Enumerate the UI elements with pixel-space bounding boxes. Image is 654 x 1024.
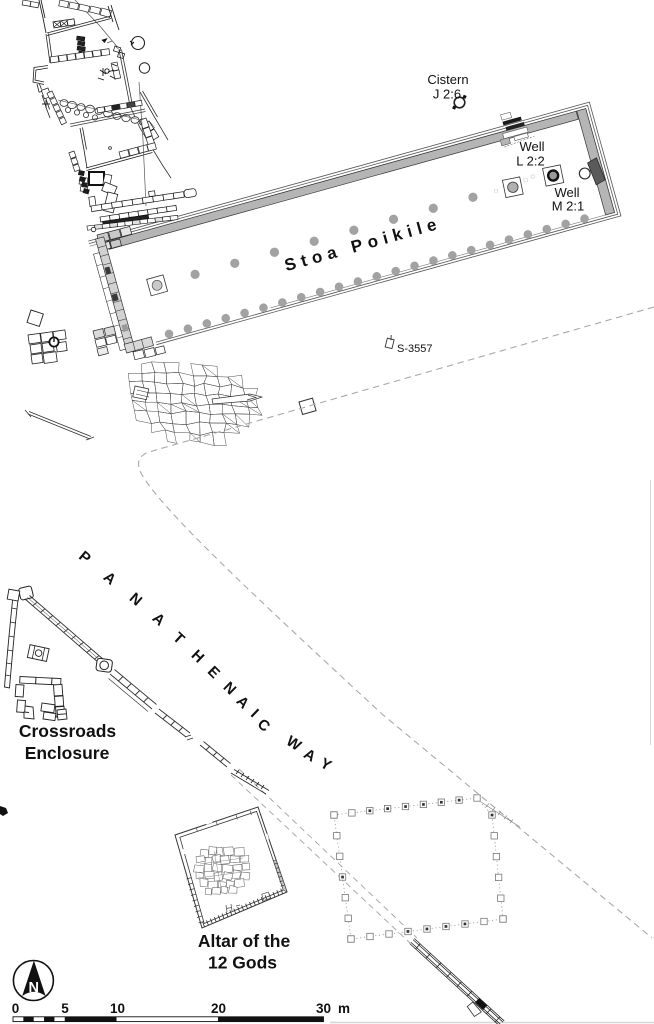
svg-text:Enclosure: Enclosure xyxy=(25,743,110,763)
svg-text:30: 30 xyxy=(316,1001,331,1016)
svg-text:N: N xyxy=(28,980,38,996)
svg-text:S-3557: S-3557 xyxy=(397,343,432,355)
svg-text:M 2:1: M 2:1 xyxy=(552,199,585,214)
svg-text:Altar of the: Altar of the xyxy=(198,931,291,951)
svg-text:10: 10 xyxy=(110,1001,125,1016)
svg-text:J 2:6: J 2:6 xyxy=(433,87,461,102)
svg-text:5: 5 xyxy=(61,1001,69,1016)
svg-text:Cistern: Cistern xyxy=(427,72,468,87)
svg-text:L 2:2: L 2:2 xyxy=(516,154,544,169)
svg-text:m: m xyxy=(338,1001,350,1016)
svg-text:0: 0 xyxy=(12,1001,20,1016)
svg-text:12 Gods: 12 Gods xyxy=(208,953,277,973)
svg-text:Well: Well xyxy=(519,139,544,154)
svg-text:Crossroads: Crossroads xyxy=(19,721,117,741)
svg-text:20: 20 xyxy=(211,1001,226,1016)
